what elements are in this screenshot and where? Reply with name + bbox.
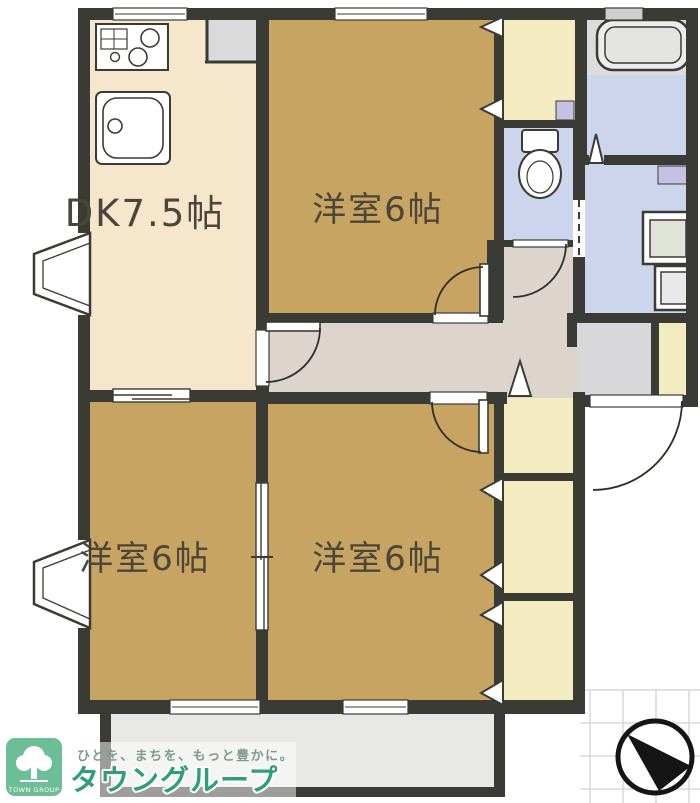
storage-shelf	[556, 101, 574, 120]
gas-stove	[96, 24, 168, 70]
bedroom-top-floor	[263, 18, 503, 321]
sliding-door-dk-bedroom	[113, 389, 190, 402]
logo-caption: TOWN GROUP	[8, 786, 60, 794]
bath-window	[605, 8, 643, 20]
floorplan-image: TOWN GROUP DK7.5帖 洋室6帖 洋室6帖 洋室6帖 ひとを、まちを…	[0, 0, 700, 803]
room-label-bedroom-bottom-right: 洋室6帖	[283, 531, 473, 580]
room-label-dk: DK7.5帖	[40, 183, 250, 237]
toilet	[519, 130, 561, 198]
floorplan-drawing: TOWN GROUP	[0, 0, 700, 803]
bathtub	[597, 20, 689, 70]
town-group-logo: TOWN GROUP	[6, 738, 62, 796]
kitchen-sink	[96, 92, 170, 164]
washing-machine	[643, 212, 693, 264]
room-label-bedroom-top: 洋室6帖	[283, 182, 473, 231]
bay-window-dk	[34, 233, 90, 315]
room-label-bedroom-bottom-left: 洋室6帖	[50, 531, 240, 580]
entrance-floor	[577, 320, 659, 398]
closet-column-floor	[500, 398, 575, 710]
door-washroom-folding	[573, 200, 585, 257]
north-compass-icon	[618, 721, 692, 793]
vanity-counter	[658, 166, 688, 184]
door-entrance	[590, 395, 683, 490]
brand-company-name: タウングループ	[70, 757, 278, 799]
